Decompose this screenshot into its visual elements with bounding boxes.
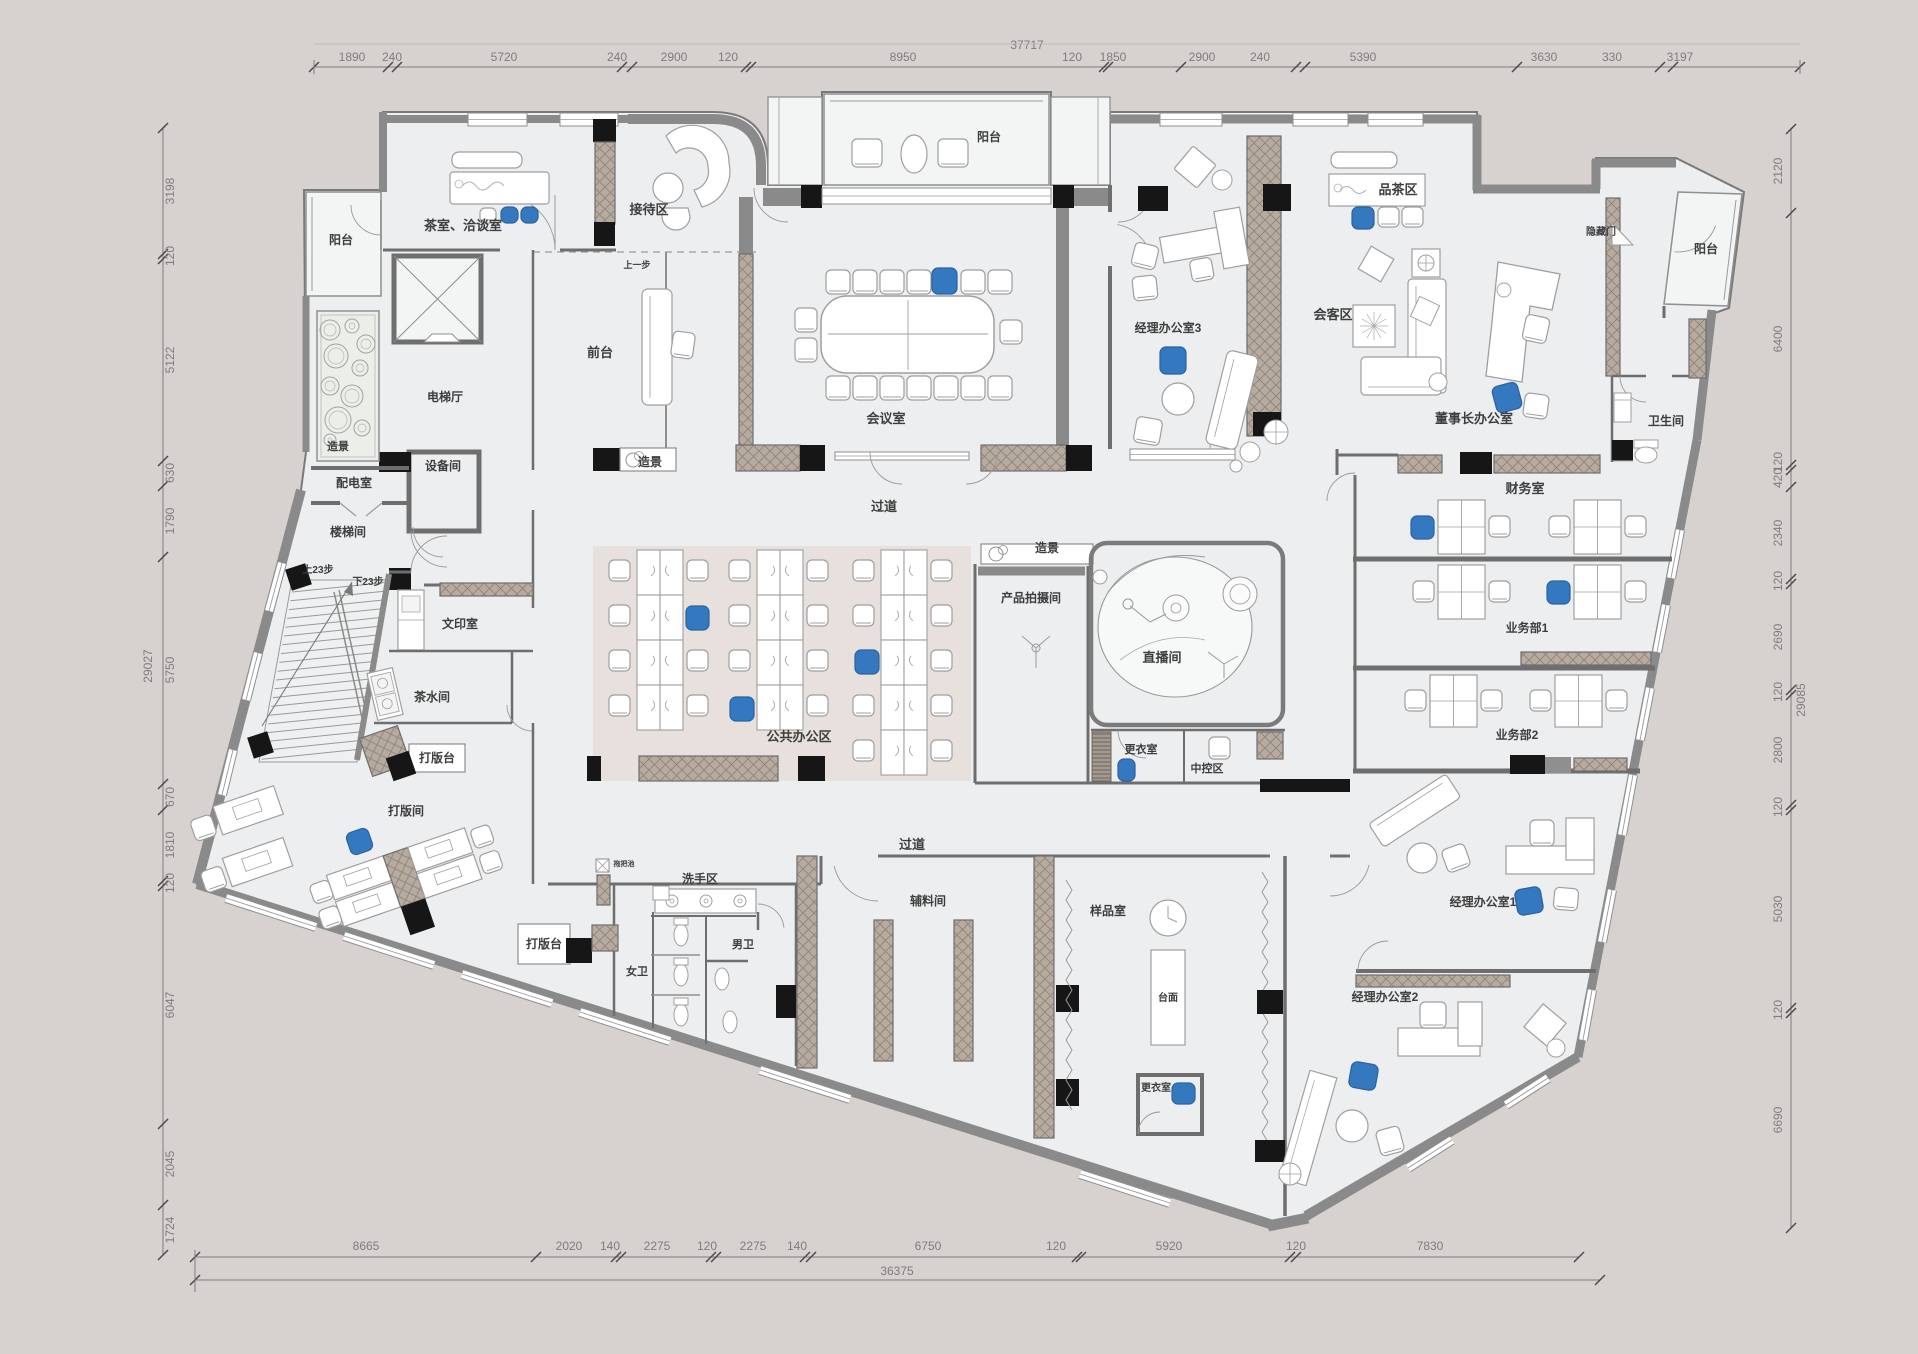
- svg-text:140: 140: [600, 1239, 620, 1253]
- svg-text:240: 240: [607, 50, 627, 64]
- svg-text:5920: 5920: [1156, 1239, 1183, 1253]
- svg-text:120: 120: [163, 246, 177, 266]
- svg-text:8665: 8665: [353, 1239, 380, 1253]
- svg-text:直播间: 直播间: [1142, 650, 1181, 665]
- svg-text:7830: 7830: [1417, 1239, 1444, 1253]
- svg-text:5750: 5750: [163, 656, 177, 683]
- svg-text:财务室: 财务室: [1505, 481, 1544, 496]
- svg-text:下23步: 下23步: [352, 575, 383, 588]
- svg-text:6750: 6750: [915, 1239, 942, 1253]
- svg-text:1790: 1790: [163, 507, 177, 534]
- svg-text:造景: 造景: [1035, 540, 1059, 555]
- svg-text:2020: 2020: [556, 1239, 583, 1253]
- svg-text:业务部2: 业务部2: [1496, 727, 1539, 742]
- svg-text:5390: 5390: [1350, 50, 1377, 64]
- svg-text:6047: 6047: [163, 991, 177, 1018]
- svg-text:3198: 3198: [163, 177, 177, 204]
- svg-text:更衣室: 更衣室: [1125, 742, 1158, 756]
- svg-text:2800: 2800: [1771, 736, 1785, 763]
- svg-text:120: 120: [163, 873, 177, 893]
- svg-text:5720: 5720: [491, 50, 518, 64]
- svg-text:120: 120: [1771, 682, 1785, 702]
- svg-text:电梯厅: 电梯厅: [427, 389, 463, 404]
- svg-text:打版台: 打版台: [526, 936, 562, 951]
- svg-text:辅料间: 辅料间: [910, 893, 946, 908]
- svg-text:140: 140: [787, 1239, 807, 1253]
- svg-text:36375: 36375: [880, 1264, 914, 1278]
- svg-text:洗手区: 洗手区: [682, 871, 718, 886]
- svg-text:1890: 1890: [339, 50, 366, 64]
- svg-text:2690: 2690: [1771, 623, 1785, 650]
- svg-text:5030: 5030: [1771, 895, 1785, 922]
- svg-text:公共办公区: 公共办公区: [766, 729, 831, 744]
- svg-text:茶水间: 茶水间: [413, 689, 450, 704]
- svg-text:3197: 3197: [1667, 50, 1694, 64]
- svg-text:8950: 8950: [890, 50, 917, 64]
- svg-text:240: 240: [1250, 50, 1270, 64]
- svg-text:会客区: 会客区: [1313, 307, 1352, 322]
- svg-text:打版台: 打版台: [419, 750, 455, 765]
- svg-text:6690: 6690: [1771, 1106, 1785, 1133]
- svg-text:670: 670: [163, 787, 177, 807]
- svg-text:更衣室: 更衣室: [1141, 1081, 1171, 1094]
- svg-text:3630: 3630: [1531, 50, 1558, 64]
- svg-text:过道: 过道: [899, 837, 925, 852]
- svg-text:造景: 造景: [327, 439, 349, 453]
- svg-text:董事长办公室: 董事长办公室: [1435, 411, 1513, 426]
- svg-text:120: 120: [1771, 797, 1785, 817]
- svg-text:产品拍摄间: 产品拍摄间: [1001, 590, 1061, 605]
- svg-text:阳台: 阳台: [977, 129, 1001, 144]
- svg-text:2275: 2275: [740, 1239, 767, 1253]
- svg-text:上23步: 上23步: [302, 563, 333, 576]
- svg-text:阳台: 阳台: [329, 232, 353, 247]
- svg-text:拖把池: 拖把池: [614, 859, 635, 868]
- svg-text:茶室、洽谈室: 茶室、洽谈室: [424, 218, 502, 233]
- svg-text:5122: 5122: [163, 346, 177, 373]
- svg-text:上一步: 上一步: [623, 259, 650, 270]
- svg-text:造景: 造景: [638, 454, 662, 469]
- svg-text:经理办公室3: 经理办公室3: [1135, 320, 1202, 335]
- svg-text:配电室: 配电室: [336, 475, 372, 490]
- svg-text:120: 120: [1046, 1239, 1066, 1253]
- svg-text:1810: 1810: [163, 831, 177, 858]
- svg-text:1724: 1724: [163, 1216, 177, 1243]
- svg-text:29027: 29027: [141, 649, 155, 683]
- svg-text:台面: 台面: [1158, 991, 1178, 1004]
- svg-text:经理办公室1: 经理办公室1: [1450, 894, 1517, 909]
- svg-text:330: 330: [1602, 50, 1622, 64]
- svg-text:2900: 2900: [1189, 50, 1216, 64]
- svg-text:样品室: 样品室: [1090, 903, 1126, 918]
- svg-text:卫生间: 卫生间: [1648, 413, 1684, 428]
- svg-text:120: 120: [1771, 1000, 1785, 1020]
- svg-text:120: 120: [718, 50, 738, 64]
- svg-text:420: 420: [1771, 468, 1785, 488]
- svg-text:1850: 1850: [1100, 50, 1127, 64]
- svg-text:会议室: 会议室: [866, 411, 905, 426]
- svg-text:经理办公室2: 经理办公室2: [1352, 989, 1419, 1004]
- svg-text:2275: 2275: [644, 1239, 671, 1253]
- svg-text:2340: 2340: [1771, 519, 1785, 546]
- svg-text:隐藏门: 隐藏门: [1586, 225, 1616, 238]
- svg-text:120: 120: [697, 1239, 717, 1253]
- svg-text:29085: 29085: [1794, 683, 1808, 717]
- svg-text:楼梯间: 楼梯间: [330, 524, 366, 539]
- svg-text:中控区: 中控区: [1191, 761, 1224, 775]
- svg-text:120: 120: [1286, 1239, 1306, 1253]
- svg-text:2045: 2045: [163, 1150, 177, 1177]
- svg-text:37717: 37717: [1010, 38, 1044, 52]
- svg-text:2120: 2120: [1771, 157, 1785, 184]
- svg-text:打版间: 打版间: [388, 803, 424, 818]
- svg-text:2900: 2900: [661, 50, 688, 64]
- svg-text:240: 240: [382, 50, 402, 64]
- svg-text:业务部1: 业务部1: [1506, 620, 1549, 635]
- svg-text:接待区: 接待区: [629, 202, 668, 217]
- svg-text:男卫: 男卫: [732, 938, 754, 951]
- svg-text:6400: 6400: [1771, 325, 1785, 352]
- svg-text:女卫: 女卫: [626, 964, 648, 978]
- svg-text:前台: 前台: [587, 345, 613, 360]
- svg-text:文印室: 文印室: [442, 616, 478, 631]
- svg-text:120: 120: [1062, 50, 1082, 64]
- svg-text:630: 630: [163, 463, 177, 483]
- svg-text:过道: 过道: [871, 499, 897, 514]
- svg-text:品茶区: 品茶区: [1378, 182, 1417, 197]
- svg-text:120: 120: [1771, 571, 1785, 591]
- svg-text:设备间: 设备间: [425, 458, 461, 473]
- svg-text:阳台: 阳台: [1694, 241, 1718, 256]
